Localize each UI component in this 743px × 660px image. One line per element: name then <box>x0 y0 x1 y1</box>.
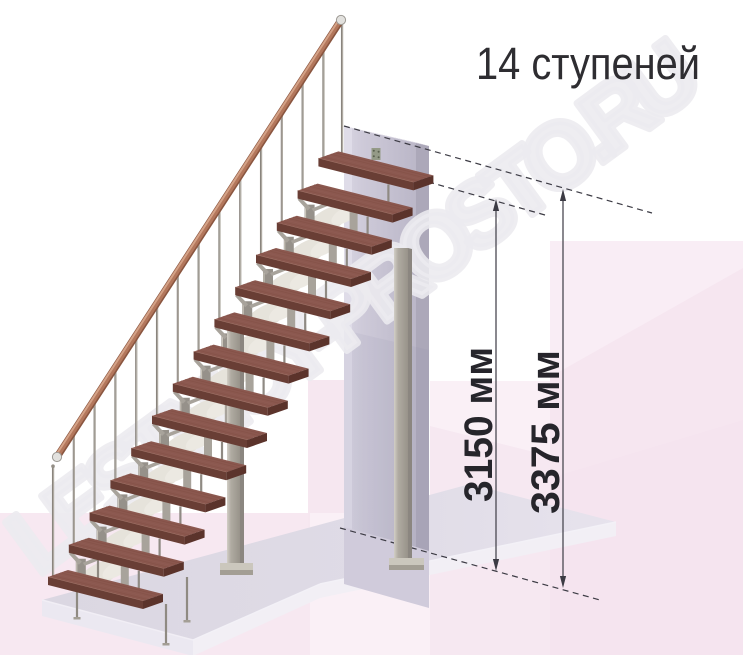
svg-text:3375 мм: 3375 мм <box>524 350 568 514</box>
svg-text:14 ступеней: 14 ступеней <box>476 38 700 89</box>
svg-text:3150 мм: 3150 мм <box>457 347 501 502</box>
